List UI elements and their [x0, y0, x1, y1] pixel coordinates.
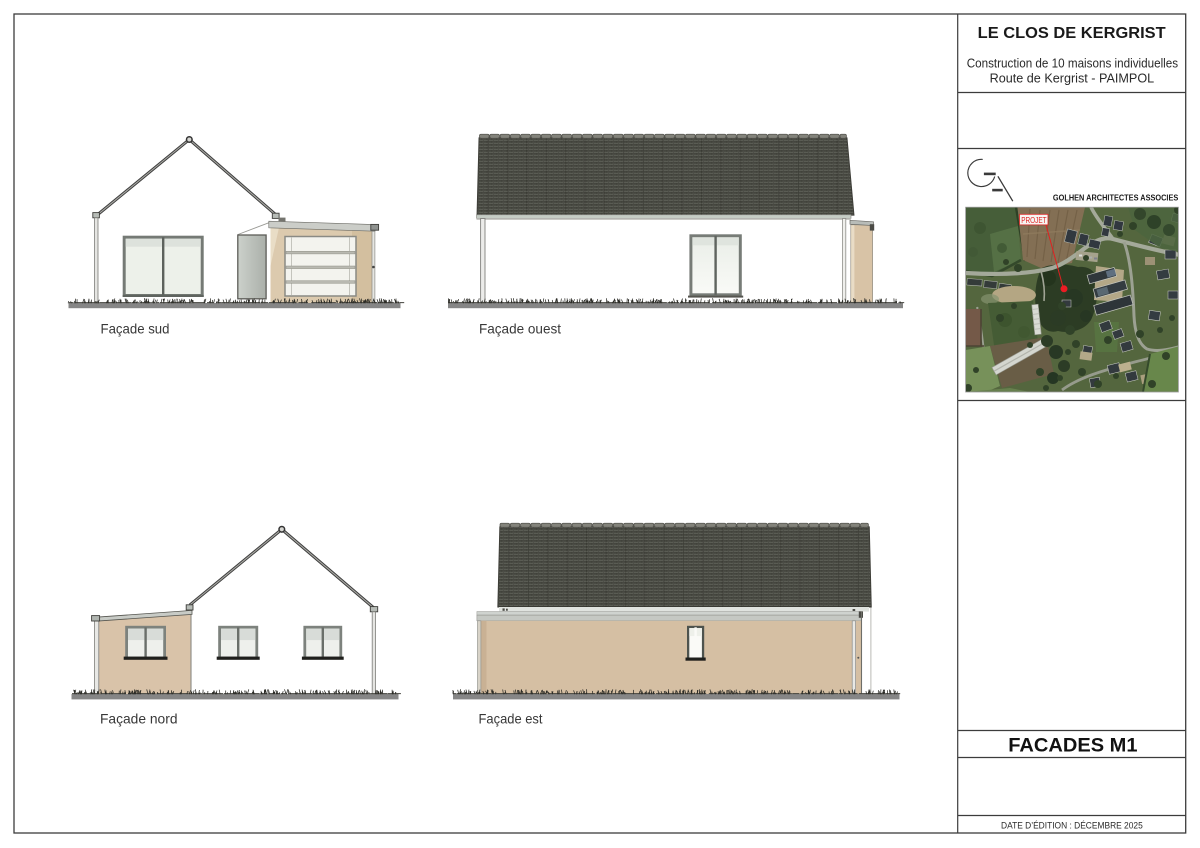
- svg-text:GOLHEN ARCHITECTES ASSOCIES: GOLHEN ARCHITECTES ASSOCIES: [1053, 193, 1179, 203]
- svg-text:LE CLOS DE KERGRIST: LE CLOS DE KERGRIST: [978, 25, 1166, 42]
- svg-text:Façade sud: Façade sud: [101, 321, 170, 337]
- svg-text:Route de Kergrist - PAIMPOL: Route de Kergrist - PAIMPOL: [990, 72, 1155, 86]
- svg-text:Façade ouest: Façade ouest: [479, 321, 561, 337]
- svg-text:PROJET: PROJET: [1021, 215, 1046, 225]
- svg-text:DATE D’ÉDITION : DÉCEMBRE 2025: DATE D’ÉDITION : DÉCEMBRE 2025: [1001, 821, 1143, 832]
- svg-text:Construction de 10 maisons ind: Construction de 10 maisons individuelles: [967, 57, 1178, 71]
- svg-text:Façade est: Façade est: [479, 711, 543, 727]
- svg-text:FACADES M1: FACADES M1: [1008, 735, 1137, 757]
- svg-text:Façade nord: Façade nord: [100, 711, 178, 727]
